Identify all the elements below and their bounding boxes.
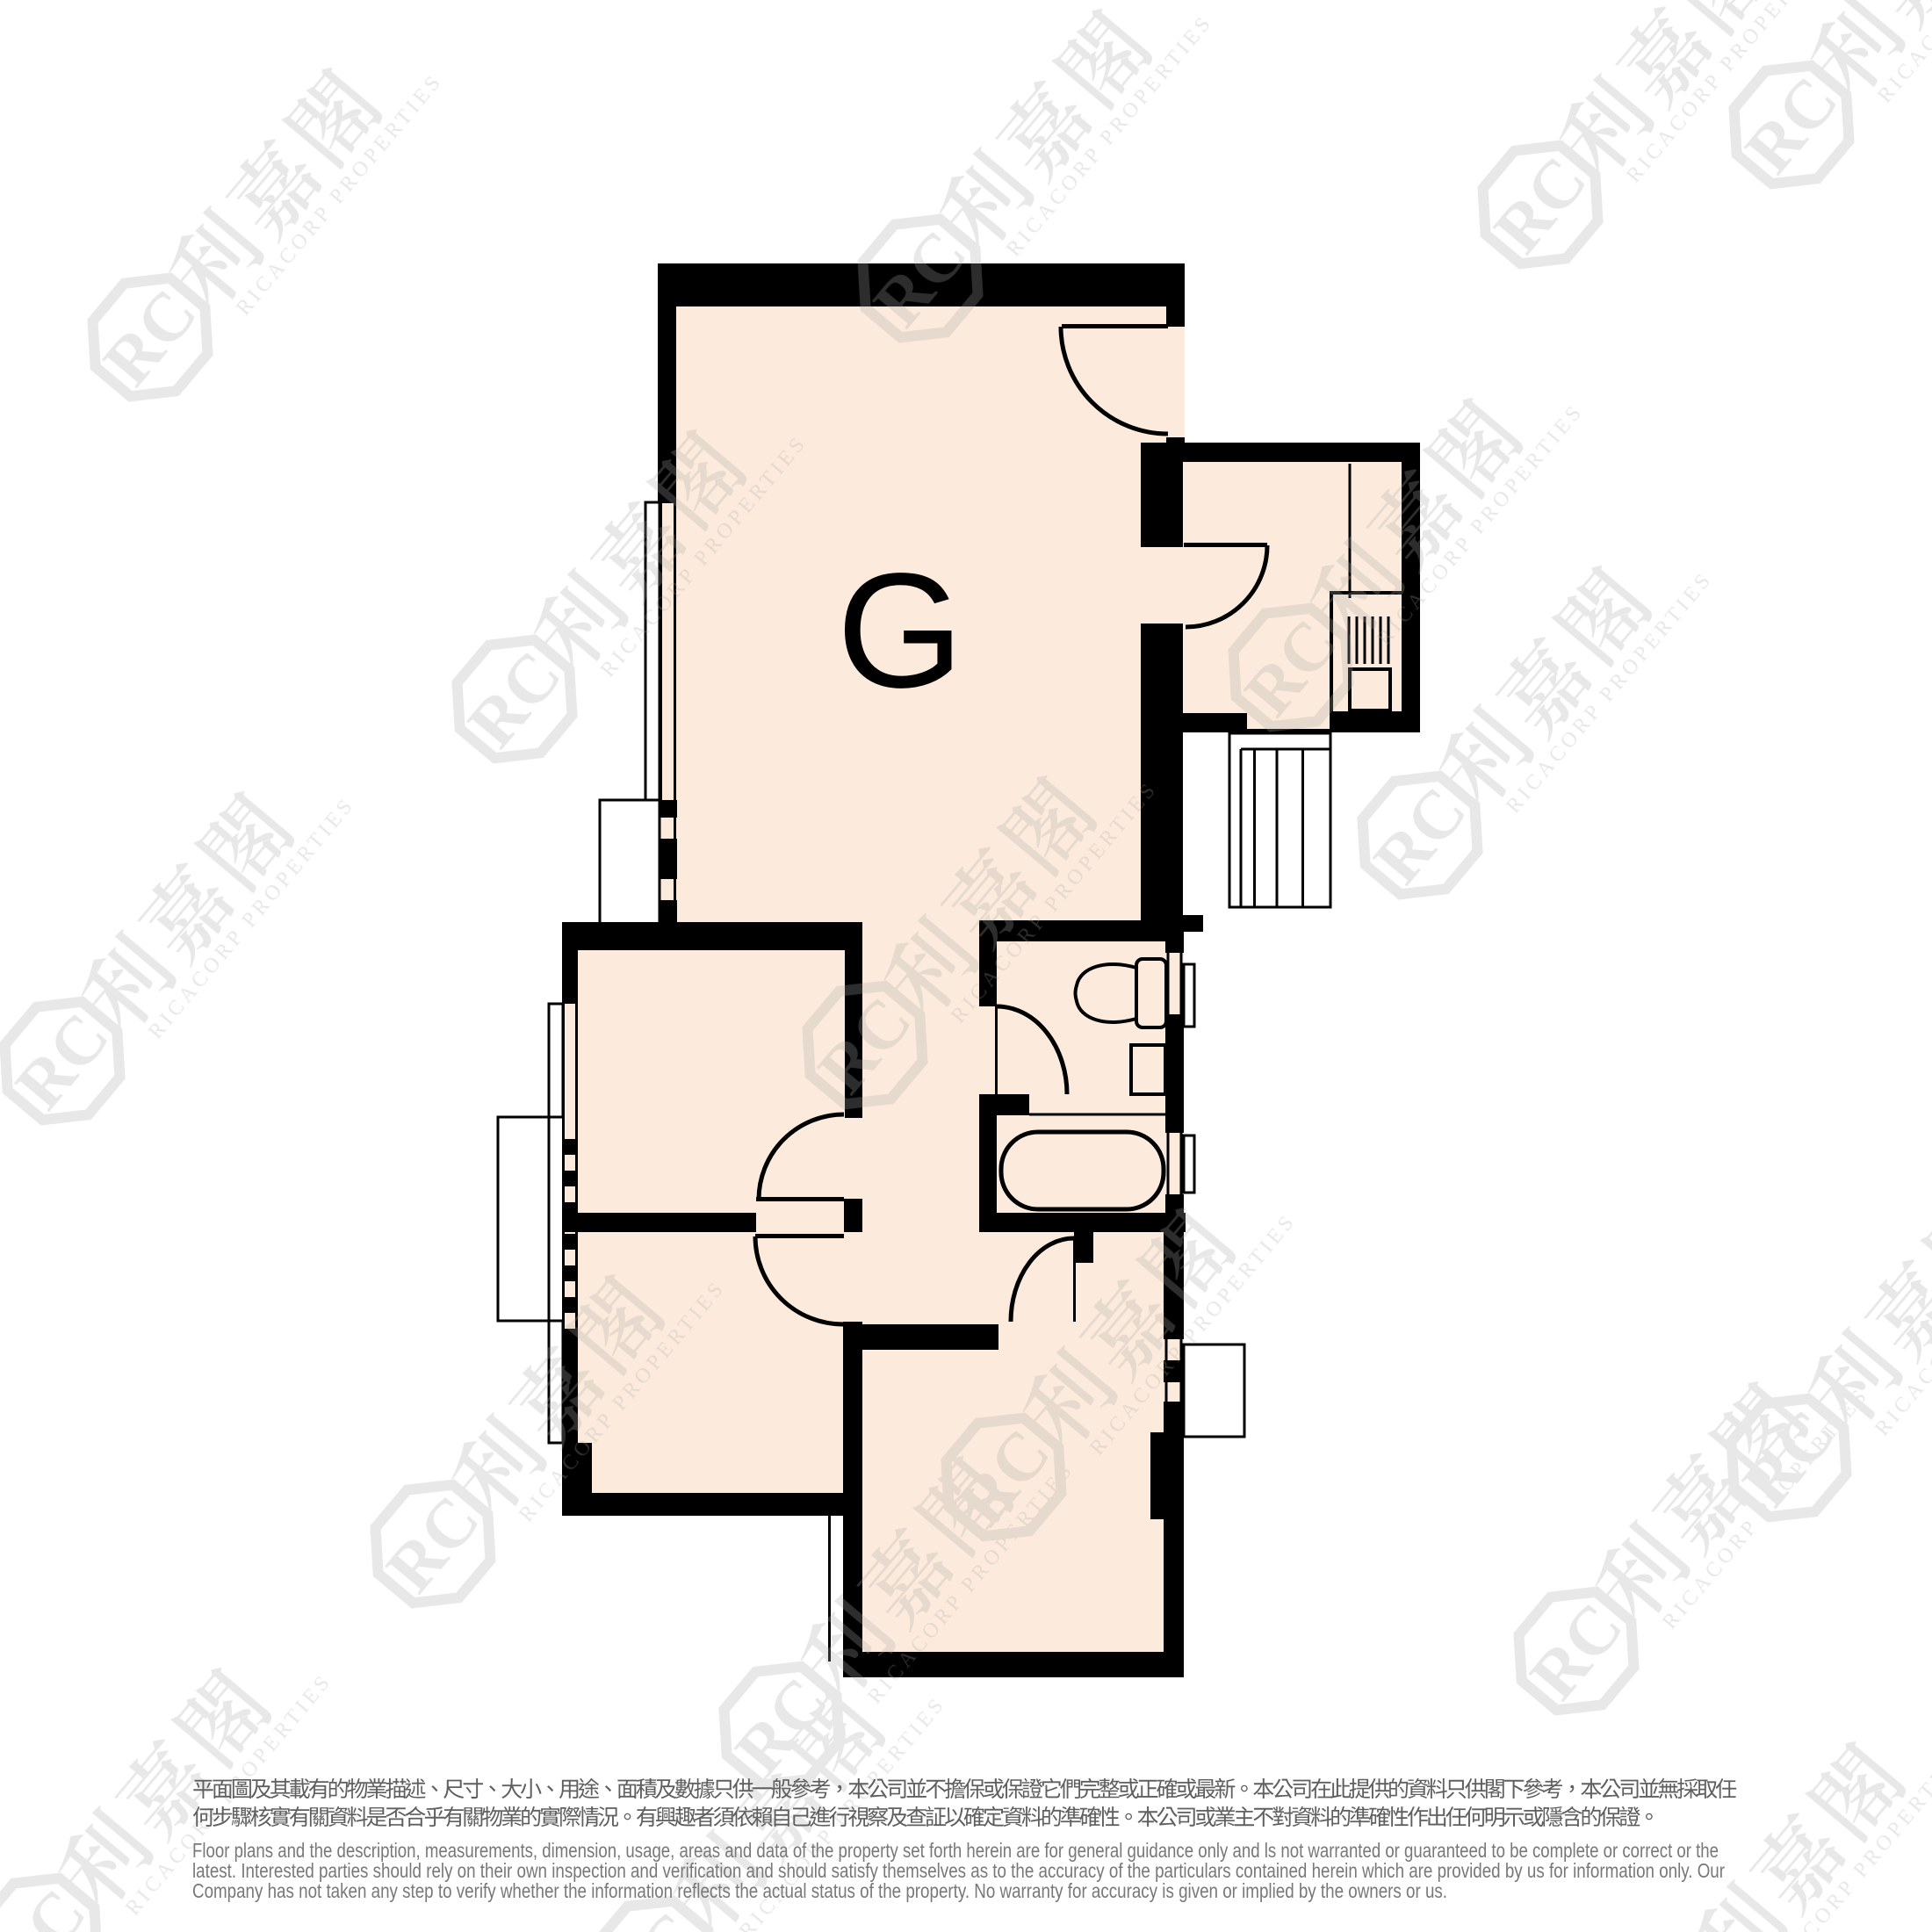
svg-text:Company has not taken any step: Company has not taken any step to verify… bbox=[192, 1879, 1447, 1902]
svg-text:G: G bbox=[837, 540, 964, 722]
